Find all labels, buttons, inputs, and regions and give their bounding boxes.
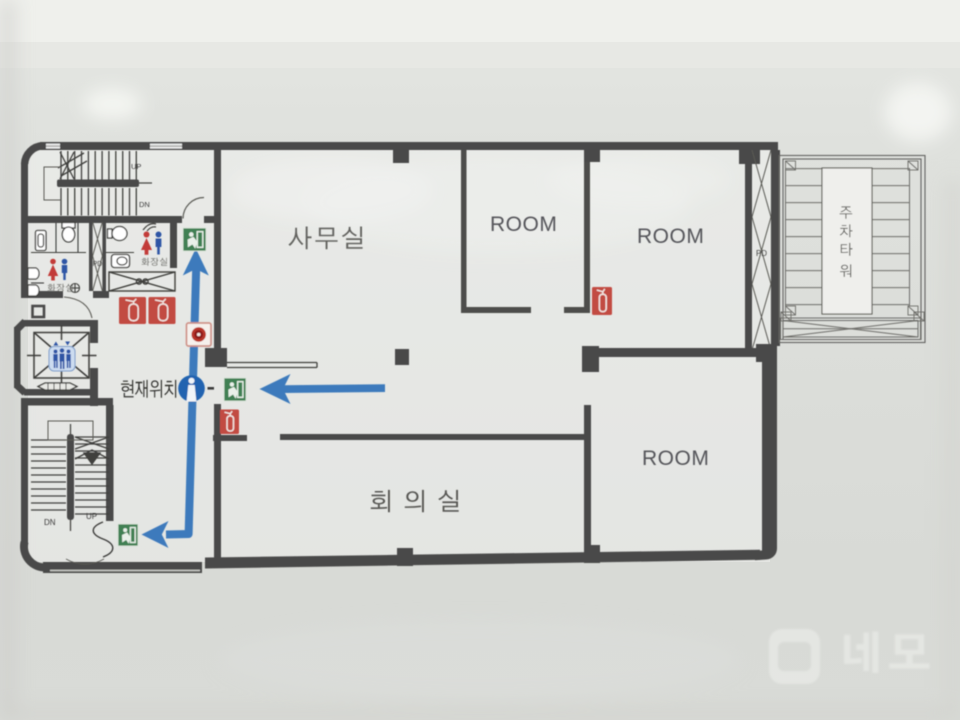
svg-text:UP: UP	[131, 162, 141, 171]
svg-text:ROOM: ROOM	[490, 213, 557, 236]
svg-text:PD: PD	[93, 261, 103, 268]
svg-text:DN: DN	[139, 200, 150, 209]
svg-text:ROOM: ROOM	[637, 225, 704, 248]
svg-text:ROOM: ROOM	[642, 447, 709, 470]
svg-text:PD: PD	[756, 249, 767, 258]
svg-text:DN: DN	[44, 518, 56, 527]
svg-text:UP: UP	[86, 512, 97, 521]
